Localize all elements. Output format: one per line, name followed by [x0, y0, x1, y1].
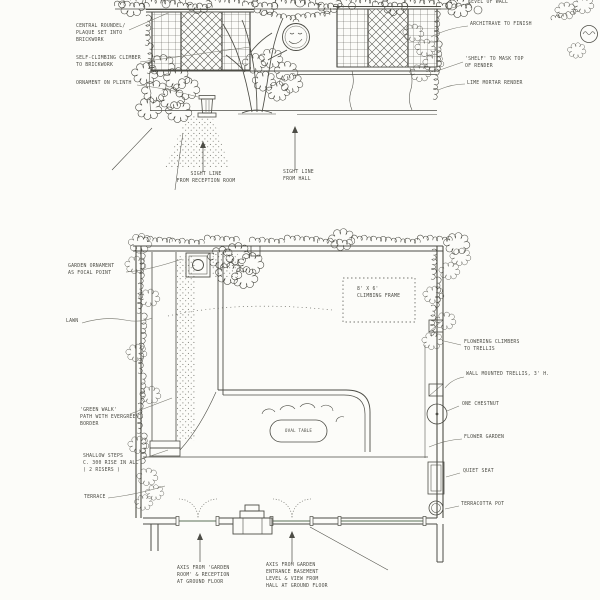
label-sight-line-reception: SIGHT LINE FROM RECEPTION ROOM [168, 172, 244, 186]
label-level-of-wall: LEVEL OF WALL [468, 0, 508, 7]
plan-drawing [82, 229, 471, 570]
label-flowering-climbers: FLOWERING CLIMBERS TO TRELLIS [464, 340, 520, 354]
pier-roundel [581, 26, 598, 43]
axis-arrows [197, 531, 295, 562]
label-quiet-seat: QUIET SEAT [463, 469, 494, 476]
garden-steps [233, 505, 272, 534]
label-terracotta-pot: TERRACOTTA POT [461, 502, 504, 509]
label-self-climbing: SELF-CLIMBING CLIMBER TO BRICKWORK [76, 56, 141, 70]
garden-design-sheet: CENTRAL ROUNDEL/ PLAQUE SET INTO BRICKWO… [0, 0, 600, 600]
label-ornament-plinth: ORNAMENT ON PLINTH [76, 81, 132, 88]
plinth-shrub [208, 243, 264, 289]
label-garden-ornament: GARDEN ORNAMENT AS FOCAL POINT [68, 264, 114, 278]
pot [429, 501, 443, 515]
label-lawn: LAWN [66, 319, 78, 326]
plan-leader-lines [82, 259, 464, 509]
label-oval-table: OVAL TABLE [270, 428, 327, 434]
label-central-roundel: CENTRAL ROUNDEL/ PLAQUE SET INTO BRICKWO… [76, 24, 125, 45]
label-green-walk: 'GREEN WALK' PATH WITH EVERGREEN BORDER [80, 408, 139, 429]
label-architrave: ARCHITRAVE TO FINISH [470, 22, 532, 29]
label-flower-garden: FLOWER GARDEN [464, 435, 504, 442]
drawing-canvas [0, 0, 600, 600]
label-climbing-frame: 8' x 6' CLIMBING FRAME [357, 287, 400, 301]
roundel-plaque [283, 19, 310, 51]
label-sight-line-hall: SIGHT LINE FROM HALL [283, 170, 314, 184]
garden-seat [428, 462, 444, 494]
label-chestnut: ONE CHESTNUT [462, 402, 499, 409]
trellis-panel-left [146, 10, 254, 71]
label-axis-entrance: AXIS FROM GARDEN ENTRANCE BASEMENT LEVEL… [266, 563, 328, 591]
label-terrace: TERRACE [84, 495, 106, 502]
green-walk-path [150, 252, 196, 456]
label-wall-trellis: WALL MOUNTED TRELLIS, 3' H. [466, 372, 549, 379]
label-shelf: 'SHELF' TO MASK TOP OF RENDER [465, 57, 524, 71]
label-axis-garden-room: AXIS FROM 'GARDEN ROOM' & RECEPTION AT G… [177, 566, 230, 587]
wall-climbers [125, 229, 471, 511]
ornament-on-plinth [198, 96, 216, 118]
trellis-panel-right [333, 7, 441, 68]
label-lime-mortar: LIME MORTAR RENDER [467, 81, 523, 88]
label-shallow-steps: SHALLOW STEPS C. 300 RISE IN ALL ( 2 RIS… [83, 454, 139, 475]
right-border [425, 320, 447, 515]
